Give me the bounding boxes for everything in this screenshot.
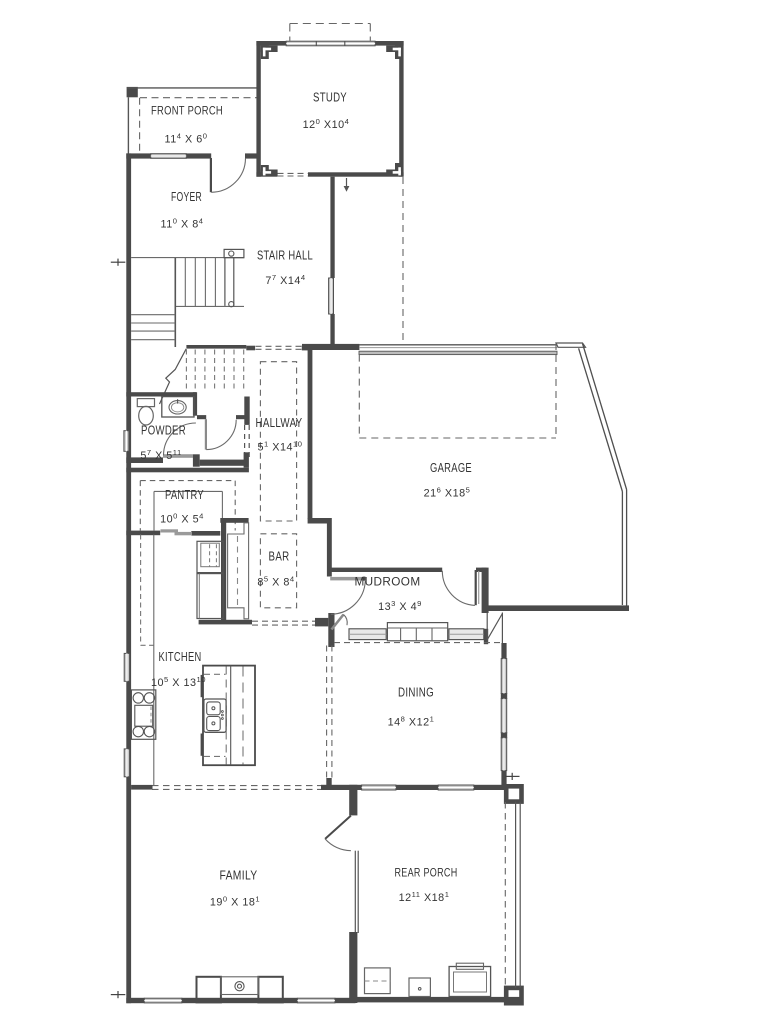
svg-text:133 X 49: 133 X 49	[378, 599, 422, 613]
svg-text:PANTRY: PANTRY	[165, 488, 204, 502]
svg-text:FOYER: FOYER	[171, 190, 202, 204]
svg-text:DINING: DINING	[398, 686, 434, 700]
svg-text:FAMILY: FAMILY	[220, 869, 258, 883]
svg-text:BAR: BAR	[269, 550, 290, 564]
svg-text:FRONT PORCH: FRONT PORCH	[151, 104, 223, 118]
svg-text:190 X 181: 190 X 181	[210, 895, 260, 909]
svg-text:114 X 60: 114 X 60	[165, 132, 208, 146]
svg-text:MUDROOM: MUDROOM	[355, 575, 421, 589]
svg-text:77 X144: 77 X144	[265, 273, 305, 287]
svg-text:REAR PORCH: REAR PORCH	[395, 866, 458, 880]
svg-text:1211 X181: 1211 X181	[399, 890, 450, 904]
svg-text:57 X 511: 57 X 511	[140, 448, 181, 462]
svg-text:216 X185: 216 X185	[424, 486, 471, 500]
svg-text:85 X 84: 85 X 84	[257, 575, 294, 589]
svg-text:GARAGE: GARAGE	[430, 460, 472, 475]
svg-text:POWDER: POWDER	[141, 424, 186, 438]
svg-text:105 X 1310: 105 X 1310	[151, 675, 206, 689]
svg-text:51 X1410: 51 X1410	[258, 440, 303, 454]
svg-text:STAIR HALL: STAIR HALL	[257, 249, 313, 263]
svg-text:100 X 54: 100 X 54	[160, 512, 204, 526]
svg-text:HALLWAY: HALLWAY	[256, 416, 303, 430]
svg-text:KITCHEN: KITCHEN	[159, 650, 202, 664]
svg-text:120 X104: 120 X104	[303, 117, 350, 131]
svg-text:STUDY: STUDY	[313, 90, 347, 105]
svg-text:148 X121: 148 X121	[388, 715, 435, 729]
svg-text:110 X 84: 110 X 84	[161, 217, 204, 231]
